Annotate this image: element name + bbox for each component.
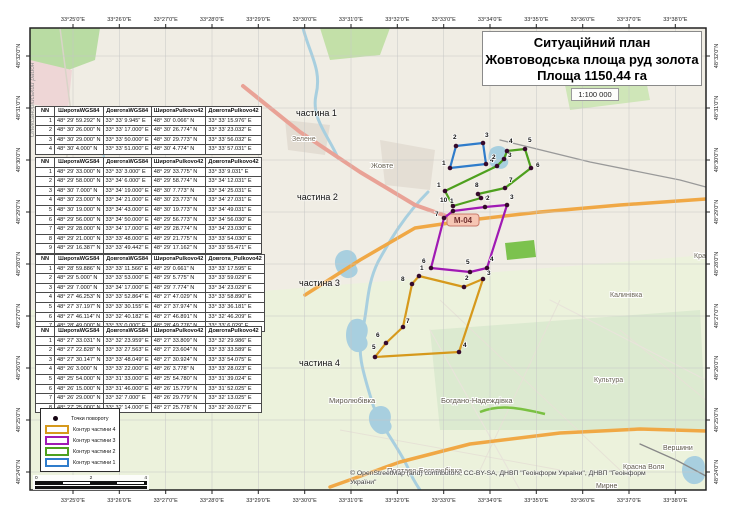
svg-text:33°30'0"E: 33°30'0"E [293,498,317,504]
contour-swatch-icon [45,436,69,445]
turn-point [495,164,500,169]
title-line-2: Жовтоводська площа руд золота [483,52,701,69]
column-header: Довгота_Pulkovo42 [206,255,264,265]
place-label: Жовте [371,161,393,170]
title-line-1: Ситуаційний план [483,35,701,52]
svg-text:48°24'0"N: 48°24'0"N [714,460,720,484]
table-row: 348° 30' 7.000" N33° 34' 19.000" E48° 30… [36,186,262,196]
table-row: 548° 25' 54.000" N33° 31' 33.000" E48° 2… [36,374,262,384]
map-attribution: © OpenStreetMap (and) contributors, CC-B… [350,470,706,487]
svg-text:33°26'0"E: 33°26'0"E [107,498,131,504]
svg-text:33°38'0"E: 33°38'0"E [663,17,687,23]
turn-point [454,144,459,149]
table-row: 448° 27' 46.253" N33° 33' 52.864" E48° 2… [36,293,265,303]
scale-bar-tick: 0 [35,476,38,481]
column-header: NN [36,107,55,117]
turn-point-number: 1 [442,160,446,167]
legend-item: Точки повороту [45,413,115,424]
turn-point [481,141,486,146]
turn-point-number: 2 [453,134,457,141]
turn-point-number: 4 [463,342,467,349]
svg-text:48°25'0"N: 48°25'0"N [714,408,720,432]
turn-point-number: 8 [475,182,479,189]
scale-bar-tick: 4 [144,476,147,481]
coord-table-part-2: NNШиротаWGS84ДовготаWGS84ШиротаPulkovo42… [35,157,262,264]
column-header: ШиротаWGS84 [55,327,104,337]
table-row: 248° 27' 22.828" N33° 33' 27.563" E48° 2… [36,346,262,356]
turn-point [451,209,456,214]
table-row: 548° 30' 19.000" N33° 34' 43.000" E48° 3… [36,205,262,215]
title-line-3: Площа 1150,44 га [483,68,701,85]
turn-point [448,166,453,171]
column-header: NN [36,327,55,337]
title-box: Ситуаційний план Жовтоводська площа руд … [482,31,702,86]
map-scale-label: 1:100 000 [571,88,619,101]
column-header: NN [36,255,55,265]
attribution-line-1: © OpenStreetMap (and) contributors, CC-B… [350,470,646,477]
table-row: 648° 26' 15.000" N33° 31' 46.000" E48° 2… [36,384,262,394]
table-row: 448° 30' 23.000" N33° 34' 21.000" E48° 3… [36,196,262,206]
turn-point-number: 3 [487,270,491,277]
scale-bar: 024 [33,475,149,490]
place-label: Зелене [292,136,316,143]
column-header: ШиротаWGS84 [55,255,104,265]
turn-point-number: 8 [401,276,405,283]
place-label: Вершини [663,445,693,452]
svg-text:33°30'0"E: 33°30'0"E [293,17,317,23]
table-row: 348° 29' 7.000" N33° 34' 17.000" E48° 29… [36,283,265,293]
landuse-area [505,240,536,260]
svg-text:48°29'0"N: 48°29'0"N [16,200,22,224]
turn-point [442,216,447,221]
svg-text:48°30'0"N: 48°30'0"N [714,148,720,172]
turn-point-number: 3 [510,194,514,201]
svg-text:33°27'0"E: 33°27'0"E [154,17,178,23]
svg-text:33°38'0"E: 33°38'0"E [663,498,687,504]
table-row: 348° 30' 29.000" N33° 33' 50.000" E48° 3… [36,135,262,145]
svg-text:33°28'0"E: 33°28'0"E [200,498,224,504]
turn-point [481,277,486,282]
svg-text:48°26'0"N: 48°26'0"N [714,356,720,380]
road-shield-m04: М-04 [447,214,479,226]
svg-text:33°34'0"E: 33°34'0"E [478,498,502,504]
turn-point-number: 2 [492,154,496,161]
turn-point [373,355,378,360]
svg-text:33°29'0"E: 33°29'0"E [246,17,270,23]
svg-text:33°35'0"E: 33°35'0"E [524,498,548,504]
turn-point [476,192,481,197]
scale-bar-line [35,486,147,489]
turn-point [502,157,507,162]
turn-point [468,270,473,275]
turn-point [384,341,389,346]
place-label: Богдано-Надеждівка [441,396,513,405]
legend-item-label: Контур частини 3 [73,438,116,444]
column-header: ДовготаWGS84 [103,107,151,117]
svg-text:33°28'0"E: 33°28'0"E [200,17,224,23]
coord-table-part-1: NNШиротаWGS84ДовготаWGS84ШиротаPulkovo42… [35,106,262,155]
svg-text:33°35'0"E: 33°35'0"E [524,17,548,23]
turn-point [462,285,467,290]
column-header: ДовготаWGS84 [103,327,151,337]
svg-text:33°37'0"E: 33°37'0"E [617,498,641,504]
part-caption-4: частина 4 [299,358,340,368]
scale-bar-segments [35,481,147,485]
coord-table-part-3: NNШиротаWGS84ДовготаWGS84ШиротаPulkovo42… [35,254,265,332]
legend-item: Контур частини 1 [45,457,115,468]
turn-point-icon [53,416,58,421]
legend-item: Контур частини 4 [45,424,115,435]
legend-items: Точки поворотуКонтур частини 4Контур час… [45,413,115,468]
situational-plan-page: Олександрійський районЗеленеЖовтеКалинів… [0,0,740,524]
place-label: Миролюбівка [329,396,376,405]
table-row: 948° 29' 16.387" N33° 33' 49.442" E48° 2… [36,244,262,254]
svg-text:33°26'0"E: 33°26'0"E [107,17,131,23]
turn-point [479,196,484,201]
legend-item-label: Контур частини 1 [73,460,116,466]
turn-point-number: 10 [440,197,448,204]
table-row: 148° 29' 33.000" N33° 33' 3.000" E48° 29… [36,167,262,177]
turn-point [523,147,528,152]
table-row: 148° 27' 33.031" N33° 32' 23.959" E48° 2… [36,336,262,346]
column-header: NN [36,158,55,168]
scale-bar-tick: 2 [90,476,93,481]
svg-text:33°32'0"E: 33°32'0"E [385,498,409,504]
svg-text:33°33'0"E: 33°33'0"E [432,498,456,504]
svg-text:48°29'0"N: 48°29'0"N [714,200,720,224]
pond [346,319,368,352]
column-header: ДовготаWGS84 [103,255,151,265]
svg-text:48°32'0"N: 48°32'0"N [16,44,22,68]
turn-point [401,325,406,330]
svg-text:33°33'0"E: 33°33'0"E [432,17,456,23]
turn-point [484,162,489,167]
landuse-area [430,310,706,430]
legend-item: Контур частини 2 [45,446,115,457]
turn-point [443,189,448,194]
turn-point-number: 1 [450,198,454,205]
turn-point [529,166,534,171]
turn-point [410,282,415,287]
svg-text:48°30'0"N: 48°30'0"N [16,148,22,172]
part-caption-1: частина 1 [296,108,337,118]
turn-point-number: 6 [422,258,426,265]
turn-point-number: 1 [420,265,424,272]
svg-text:48°24'0"N: 48°24'0"N [16,460,22,484]
column-header: ШиротаPulkovo42 [151,327,206,337]
svg-text:48°27'0"N: 48°27'0"N [16,304,22,328]
turn-point-number: 4 [490,256,494,263]
column-header: ДовготаWGS84 [103,158,151,168]
svg-text:48°32'0"N: 48°32'0"N [714,44,720,68]
svg-text:33°34'0"E: 33°34'0"E [478,17,502,23]
svg-text:33°36'0"E: 33°36'0"E [571,498,595,504]
turn-point-number: 7 [406,318,410,325]
svg-text:48°31'0"N: 48°31'0"N [16,96,22,120]
table-row: 648° 27' 46.114" N33° 32' 40.182" E48° 2… [36,312,265,322]
table-row: 448° 30' 4.000" N33° 33' 51.000" E48° 30… [36,145,262,155]
turn-point [505,149,510,154]
part-caption-2: частина 2 [297,192,338,202]
svg-text:33°27'0"E: 33°27'0"E [154,498,178,504]
table-row: 148° 28' 59.886" N33° 33' 11.566" E48° 2… [36,264,265,274]
place-label: Культура [594,377,623,384]
column-header: ДовготаPulkovo42 [206,158,261,168]
svg-text:33°32'0"E: 33°32'0"E [385,17,409,23]
table-row: 548° 27' 37.197" N33° 33' 30.155" E48° 2… [36,302,265,312]
coord-table-part-4: NNШиротаWGS84ДовготаWGS84ШиротаPulkovo42… [35,326,262,413]
turn-point-number: 5 [372,344,376,351]
svg-text:48°26'0"N: 48°26'0"N [16,356,22,380]
contour-swatch-icon [45,458,69,467]
turn-point-number: 5 [528,137,532,144]
svg-text:48°25'0"N: 48°25'0"N [16,408,22,432]
contour-swatch-icon [45,447,69,456]
svg-text:33°25'0"E: 33°25'0"E [61,17,85,23]
column-header: ДовготаPulkovo42 [206,327,261,337]
column-header: ШиротаWGS84 [55,158,104,168]
legend-item-label: Контур частини 4 [73,427,116,433]
turn-point-number: 7 [509,177,513,184]
turn-point-number: 2 [465,275,469,282]
svg-text:33°29'0"E: 33°29'0"E [246,498,270,504]
turn-point [503,186,508,191]
table-row: 748° 26' 29.000" N33° 32' 7.000" E48° 26… [36,394,262,404]
place-label: Калинівка [610,291,642,299]
svg-text:48°28'0"N: 48°28'0"N [16,252,22,276]
svg-text:48°28'0"N: 48°28'0"N [714,252,720,276]
turn-point [505,203,510,208]
table-row: 348° 27' 30.147" N33° 33' 48.049" E48° 2… [36,355,262,365]
table-row: 448° 26' 3.000" N33° 33' 22.000" E48° 26… [36,365,262,375]
turn-point-number: 7 [435,211,439,218]
svg-text:48°27'0"N: 48°27'0"N [714,304,720,328]
turn-point-number: 5 [466,259,470,266]
table-row: 748° 29' 28.000" N33° 34' 17.000" E48° 2… [36,225,262,235]
turn-point-number: 2 [486,195,490,202]
svg-text:48°31'0"N: 48°31'0"N [714,96,720,120]
legend-item: Контур частини 3 [45,435,115,446]
legend-item-label: Контур частини 2 [73,449,116,455]
turn-point-number: 3 [508,152,512,159]
svg-text:33°31'0"E: 33°31'0"E [339,17,363,23]
turn-point-number: 3 [485,132,489,139]
attribution-line-2: України" [350,479,376,486]
svg-text:33°37'0"E: 33°37'0"E [617,17,641,23]
table-row: 248° 29' 58.000" N33° 34' 6.000" E48° 29… [36,177,262,187]
table-row: 148° 29' 59.292" N33° 33' 9.945" E48° 30… [36,116,262,126]
turn-point [417,274,422,279]
legend: Точки поворотуКонтур частини 4Контур час… [40,408,120,472]
turn-point [429,266,434,271]
table-row: 648° 29' 56.000" N33° 34' 50.000" E48° 2… [36,215,262,225]
table-row: 848° 29' 21.000" N33° 33' 48.000" E48° 2… [36,234,262,244]
turn-point-number: 4 [509,138,513,145]
svg-text:33°36'0"E: 33°36'0"E [571,17,595,23]
part-caption-3: частина 3 [299,278,340,288]
table-row: 248° 30' 26.000" N33° 33' 17.000" E48° 3… [36,126,262,136]
turn-point-number: 1 [437,182,441,189]
svg-text:33°31'0"E: 33°31'0"E [339,498,363,504]
column-header: ШиротаWGS84 [55,107,104,117]
turn-point [483,205,488,210]
column-header: ШиротаPulkovo42 [151,107,206,117]
contour-swatch-icon [45,425,69,434]
table-row: 248° 29' 5.000" N33° 33' 53.000" E48° 29… [36,274,265,284]
svg-text:33°25'0"E: 33°25'0"E [61,498,85,504]
svg-text:М-04: М-04 [454,216,473,225]
turn-point-number: 6 [376,332,380,339]
turn-point [457,350,462,355]
turn-point-number: 6 [536,162,540,169]
column-header: ДовготаPulkovo42 [206,107,261,117]
column-header: ШиротаPulkovo42 [151,255,206,265]
column-header: ШиротаPulkovo42 [151,158,206,168]
legend-item-label: Точки повороту [71,416,109,422]
